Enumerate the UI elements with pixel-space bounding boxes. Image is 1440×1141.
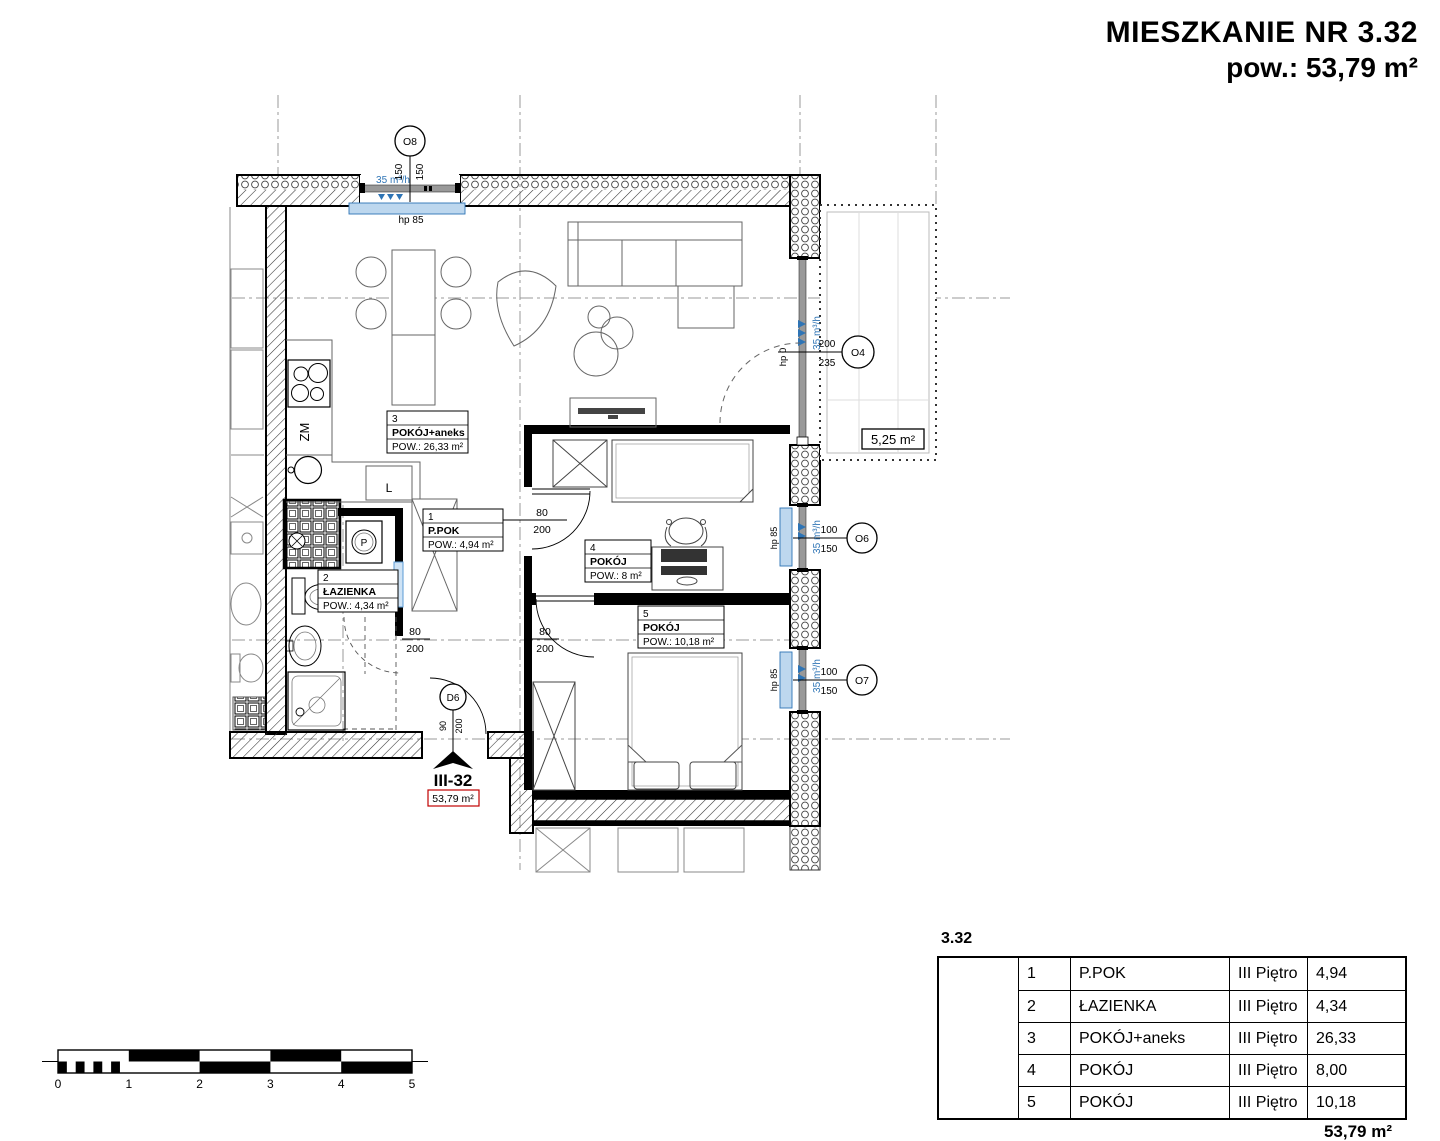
o6-callout-id: O6	[855, 533, 869, 545]
o6-dim-b: 150	[821, 544, 838, 555]
window-sill	[780, 652, 792, 708]
scale-tick: 4	[338, 1077, 345, 1091]
room-no: 5	[643, 609, 649, 620]
bath-door-width: 80	[409, 626, 421, 638]
window-sill	[780, 508, 792, 566]
row-name: P.POK	[1070, 958, 1229, 990]
o8-dim-a: 150	[394, 163, 405, 180]
neighbor-bottom	[536, 826, 820, 872]
row-floor: III Piętro	[1229, 1054, 1307, 1086]
room-name: POKÓJ	[643, 621, 680, 634]
room4-furniture	[553, 440, 753, 590]
room-area: POW.: 4,94 m²	[428, 540, 494, 551]
o7-callout-id: O7	[855, 675, 869, 687]
scale-tick: 5	[409, 1077, 416, 1091]
o6-dim-a: 100	[821, 525, 838, 536]
entrance-marker: D6 90 200 III-32 53,79 m²	[428, 684, 479, 806]
room-label-ppok: 1 P.POK POW.: 4,94 m²	[423, 509, 503, 551]
row-floor: III Piętro	[1229, 958, 1307, 990]
row-no: 4	[1018, 1054, 1070, 1086]
neighbor-left	[230, 207, 265, 732]
monitor	[661, 549, 707, 562]
row-no: 2	[1018, 990, 1070, 1022]
door4-height: 200	[533, 524, 551, 536]
window-o6: O6 100 150 hp 85 35 m³/h	[769, 503, 877, 572]
row-area: 26,33	[1307, 1022, 1405, 1054]
scale-tick: 2	[196, 1077, 203, 1091]
balcony-area-label: 5,25 m²	[871, 432, 916, 447]
row-name: POKÓJ	[1070, 1054, 1229, 1086]
door5-width: 80	[539, 626, 551, 638]
d6-dim-a: 90	[438, 721, 448, 731]
balcony: 5,25 m²	[820, 205, 936, 460]
o7-vent-label: 35 m³/h	[812, 659, 823, 693]
o8-sill-label: hp 85	[398, 215, 423, 226]
o6-vent-label: 35 m³/h	[812, 520, 823, 554]
o7-sill-label: hp 85	[769, 669, 779, 692]
room-label-lazienka: 2 ŁAZIENKA POW.: 4,34 m²	[318, 570, 398, 612]
dishwasher-label: ZM	[297, 423, 312, 442]
room-name: POKÓJ+aneks	[392, 426, 465, 439]
row-area: 8,00	[1307, 1054, 1405, 1086]
row-name: POKÓJ+aneks	[1070, 1022, 1229, 1054]
room-no: 1	[428, 512, 434, 523]
vent-arrows-icon	[798, 320, 806, 346]
room-no: 2	[323, 573, 329, 584]
d6-dim-b: 200	[454, 718, 464, 733]
vent-arrows-icon	[378, 194, 403, 200]
row-name: ŁAZIENKA	[1070, 990, 1229, 1022]
floor-plan-page: MIESZKANIE NR 3.32 pow.: 53,79 m²	[0, 0, 1440, 1141]
window-sill	[349, 203, 465, 214]
door4-width: 80	[536, 507, 548, 519]
room-no: 4	[590, 543, 596, 554]
summary-blank-cell	[939, 958, 1018, 1118]
fridge-label: L	[386, 481, 393, 495]
row-name: POKÓJ	[1070, 1086, 1229, 1118]
row-floor: III Piętro	[1229, 1086, 1307, 1118]
scale-tick: 1	[125, 1077, 132, 1091]
room-name: POKÓJ	[590, 555, 627, 568]
living-furniture	[356, 222, 742, 427]
entrance-arrow-icon	[433, 751, 473, 769]
tv	[578, 408, 645, 414]
summary-unit-label: 3.32	[941, 930, 972, 948]
bath-door-height: 200	[406, 643, 424, 655]
row-floor: III Piętro	[1229, 990, 1307, 1022]
row-area: 4,94	[1307, 958, 1405, 990]
scale-tick: 3	[267, 1077, 274, 1091]
row-no: 5	[1018, 1086, 1070, 1118]
row-no: 3	[1018, 1022, 1070, 1054]
unit-number: III-32	[434, 771, 473, 790]
room-area: POW.: 8 m²	[590, 571, 642, 582]
o7-dim-b: 150	[821, 686, 838, 697]
desk-chair	[669, 518, 703, 544]
row-area: 4,34	[1307, 990, 1405, 1022]
window-o7: O7 100 150 hp 85 35 m³/h	[769, 646, 877, 714]
room-area: POW.: 4,34 m²	[323, 601, 389, 612]
scale-bar: 0 1 2 3 4 5	[42, 1050, 428, 1091]
o4-sill-label: hp 0	[778, 348, 789, 367]
sofa	[568, 222, 742, 286]
room-area: POW.: 26,33 m²	[392, 442, 464, 453]
armchair	[497, 271, 556, 346]
toilet	[292, 578, 305, 614]
scale-tick: 0	[55, 1077, 62, 1091]
room-label-pokoj4: 4 POKÓJ POW.: 8 m²	[585, 540, 651, 582]
o8-callout-id: O8	[403, 136, 417, 148]
window-o8: 35 m³/h hp 85 O8 150 150	[349, 126, 465, 226]
coffee-table	[574, 332, 618, 376]
unit-area: 53,79 m²	[432, 793, 474, 805]
row-floor: III Piętro	[1229, 1022, 1307, 1054]
room-label-pokoj5: 5 POKÓJ POW.: 10,18 m²	[638, 606, 724, 648]
row-area: 10,18	[1307, 1086, 1405, 1118]
room-name: ŁAZIENKA	[323, 586, 376, 598]
room-label-pokoj-aneks: 3 POKÓJ+aneks POW.: 26,33 m²	[387, 411, 468, 453]
d6-callout-id: D6	[447, 693, 460, 704]
summary-table: 1 P.POK III Piętro 4,94 2 ŁAZIENKA III P…	[937, 956, 1407, 1120]
room-area: POW.: 10,18 m²	[643, 637, 715, 648]
kitchen-sink	[295, 457, 322, 484]
o4-vent-label: 35 m³/h	[812, 316, 823, 350]
o4-dim-b: 235	[819, 358, 836, 369]
row-no: 1	[1018, 958, 1070, 990]
o6-sill-label: hp 85	[769, 527, 779, 550]
room5-furniture	[533, 653, 742, 790]
room-no: 3	[392, 414, 398, 425]
o7-dim-a: 100	[821, 667, 838, 678]
room-name: P.POK	[428, 525, 460, 537]
summary-total: 53,79 m²	[1200, 1122, 1392, 1141]
o8-dim-b: 150	[415, 163, 426, 180]
o4-callout-id: O4	[851, 347, 865, 359]
washer-label: P	[361, 538, 368, 549]
door5-height: 200	[536, 643, 554, 655]
